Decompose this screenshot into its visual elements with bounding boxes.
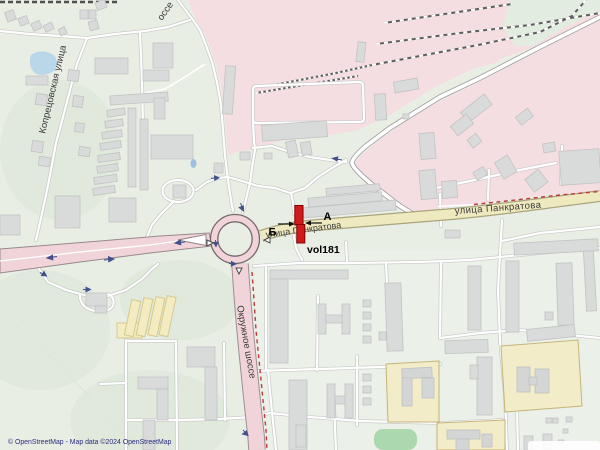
- svg-text:А: А: [324, 211, 332, 223]
- svg-text:Б: Б: [269, 227, 277, 239]
- svg-text:vol181: vol181: [307, 244, 340, 256]
- svg-text:© OpenStreetMap - Map data ©20: © OpenStreetMap - Map data ©2024 OpenStr…: [8, 438, 172, 446]
